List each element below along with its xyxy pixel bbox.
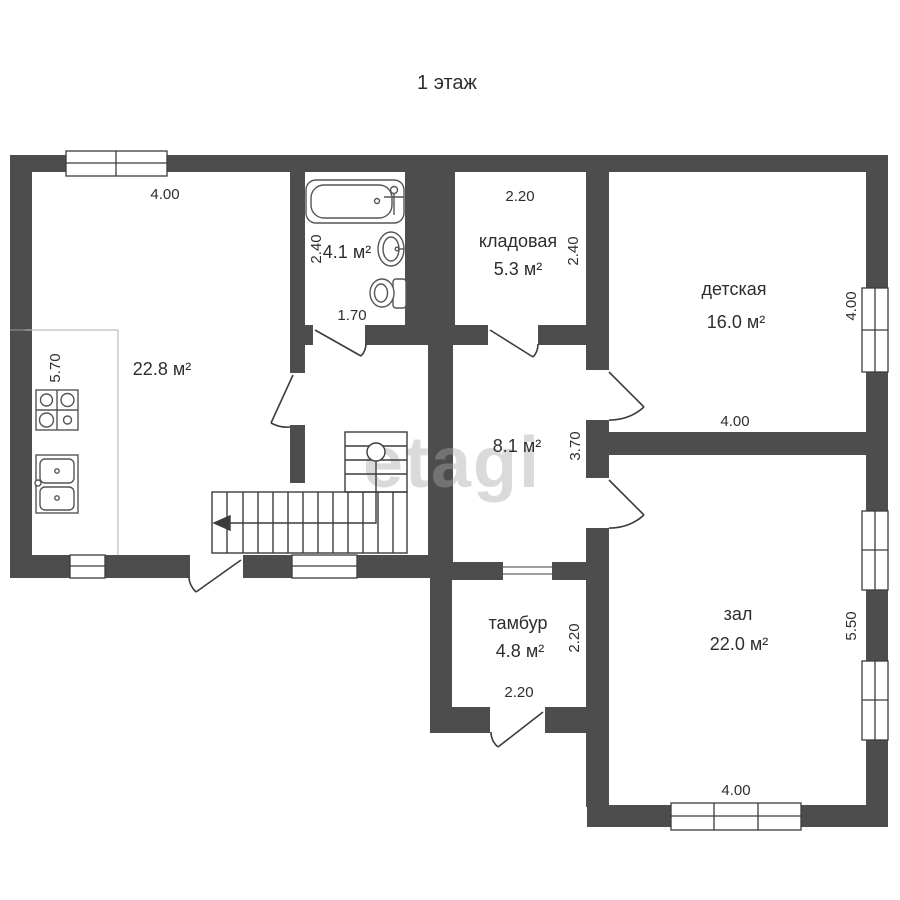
door-storage (488, 325, 538, 357)
kitchen-zone-lines (25, 330, 118, 555)
window (66, 151, 167, 176)
stove-icon (36, 390, 78, 430)
wall-segment (10, 172, 32, 578)
doors (189, 325, 644, 747)
dim-bathroom-bottom: 1.70 (337, 307, 366, 324)
wall-segment (586, 172, 609, 370)
window (292, 555, 357, 578)
door-children (586, 370, 644, 420)
kitchen-area-label: 22.8 м² (133, 359, 191, 379)
door-entrance (490, 707, 545, 747)
wall-segment (365, 325, 455, 345)
storage-area-label: 5.3 м² (494, 259, 542, 279)
stairs-direction-arrow-icon (214, 516, 230, 530)
vestibule-name-label: тамбур (489, 613, 548, 633)
dim-children-right: 4.00 (843, 291, 860, 320)
bathroom-area-label: 4.1 м² (323, 242, 371, 262)
wall-segment (290, 425, 305, 483)
wall-segment (609, 432, 866, 455)
kitchen-fixtures (35, 390, 78, 513)
dim-kitchen-left: 5.70 (47, 353, 64, 382)
floor-plan-drawing: 1 этаж etagi (0, 0, 900, 900)
wall-segment (586, 528, 609, 807)
dim-hall-right: 3.70 (567, 431, 584, 460)
dim-children-bottom: 4.00 (720, 413, 749, 430)
dim-living-right: 5.50 (843, 611, 860, 640)
dim-kitchen-top: 4.00 (150, 186, 179, 203)
floor-plan-page: 1 этаж etagi (0, 0, 900, 900)
page-title: 1 этаж (417, 72, 478, 94)
bathtub-icon (306, 180, 404, 223)
hall-area-label: 8.1 м² (493, 436, 541, 456)
wall-segment (552, 562, 586, 580)
kitchen-sink-icon (35, 455, 78, 513)
dim-storage-top: 2.20 (505, 188, 534, 205)
door-kitchen-exterior (189, 555, 243, 592)
window (862, 661, 888, 740)
washbasin-icon (378, 232, 404, 266)
wall-segment (538, 325, 586, 345)
window (862, 511, 888, 590)
wall-segment (455, 325, 488, 345)
dim-living-bottom: 4.00 (721, 782, 750, 799)
door-living (586, 478, 644, 528)
wall-segment (452, 562, 503, 580)
dim-bathroom-left: 2.40 (308, 234, 325, 263)
opening-vestibule (503, 562, 552, 580)
living-area-label: 22.0 м² (710, 634, 768, 654)
wall-segment (290, 325, 313, 345)
door-bathroom (313, 325, 366, 356)
window (671, 803, 801, 830)
living-name-label: зал (724, 604, 753, 624)
dim-storage-right: 2.40 (565, 236, 582, 265)
storage-name-label: кладовая (479, 231, 557, 251)
watermark: etagi (363, 423, 541, 503)
window (70, 555, 105, 578)
toilet-icon (370, 279, 406, 308)
dim-vestibule-bottom: 2.20 (504, 684, 533, 701)
door-kitchen-inner (271, 373, 307, 427)
dim-vestibule-right: 2.20 (566, 623, 583, 652)
vestibule-area-label: 4.8 м² (496, 641, 544, 661)
staircase (212, 432, 407, 553)
window (862, 288, 888, 372)
children-area-label: 16.0 м² (707, 312, 765, 332)
wall-segment (405, 172, 455, 325)
stairs-newel (367, 443, 385, 461)
wall-segment (586, 420, 609, 478)
children-name-label: детская (702, 279, 767, 299)
